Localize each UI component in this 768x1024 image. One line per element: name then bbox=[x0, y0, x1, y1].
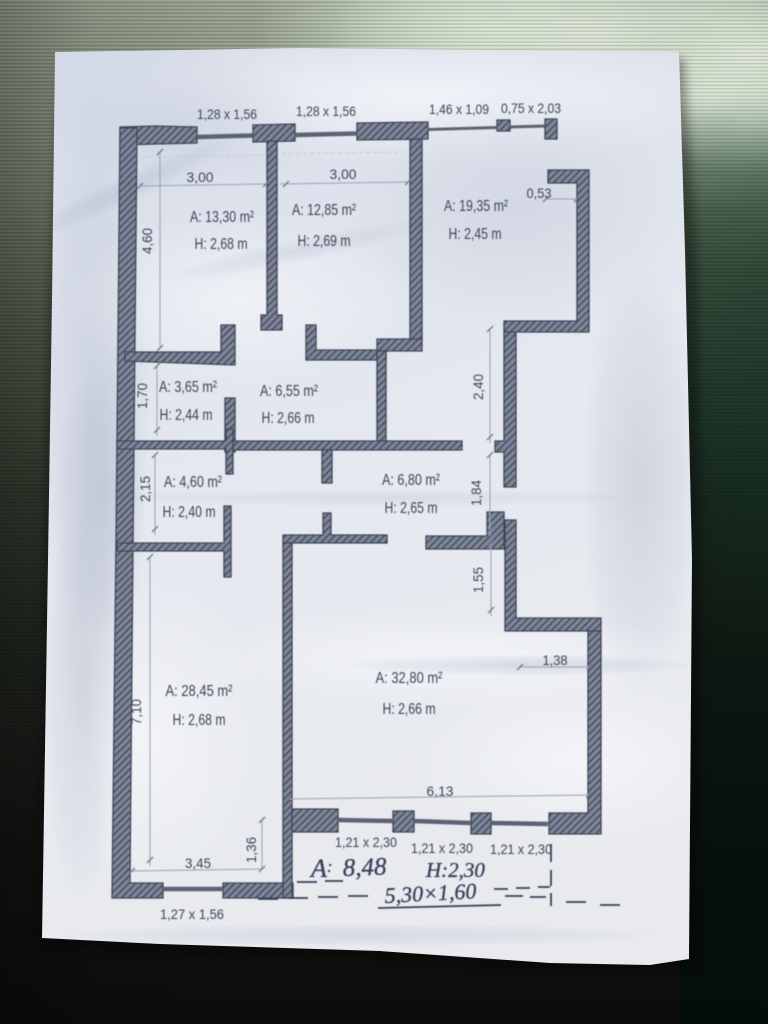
svg-text:H: 2,69 m: H: 2,69 m bbox=[298, 233, 351, 250]
svg-text:6,13: 6,13 bbox=[427, 784, 454, 799]
svg-text:1,28 x 1,56: 1,28 x 1,56 bbox=[197, 107, 257, 122]
svg-text:2,15: 2,15 bbox=[138, 476, 153, 502]
svg-text:A: 32,80 m²: A: 32,80 m² bbox=[376, 670, 444, 687]
svg-text:0,53: 0,53 bbox=[527, 186, 552, 201]
svg-text:4,60: 4,60 bbox=[140, 228, 155, 254]
svg-text:H: 2,66 m: H: 2,66 m bbox=[262, 410, 315, 427]
svg-text:2,40: 2,40 bbox=[471, 374, 486, 400]
svg-text:0,75 x 2,03: 0,75 x 2,03 bbox=[501, 101, 561, 116]
svg-text:1,21 x 2,30: 1,21 x 2,30 bbox=[335, 835, 397, 850]
svg-text:3,00: 3,00 bbox=[187, 170, 214, 185]
svg-text:A: 6,55 m²: A: 6,55 m² bbox=[260, 383, 319, 400]
svg-text:1,38: 1,38 bbox=[543, 653, 568, 668]
svg-text:A: 19,35 m²: A: 19,35 m² bbox=[444, 198, 509, 215]
svg-text:1,21 x 2,30: 1,21 x 2,30 bbox=[411, 841, 473, 856]
svg-text:A: 13,30 m²: A: 13,30 m² bbox=[190, 209, 255, 226]
svg-text:1,27 x 1,56: 1,27 x 1,56 bbox=[160, 907, 224, 922]
svg-text:5,30×1,60: 5,30×1,60 bbox=[384, 878, 477, 908]
svg-text:1,28 x 1,56: 1,28 x 1,56 bbox=[296, 104, 356, 119]
svg-text:A: 4,60 m²: A: 4,60 m² bbox=[164, 474, 223, 491]
svg-text:1,46 x 1,09: 1,46 x 1,09 bbox=[429, 102, 489, 117]
svg-text:1,70: 1,70 bbox=[135, 383, 150, 409]
svg-text:H: 2,68 m: H: 2,68 m bbox=[195, 236, 248, 253]
svg-text:1,55: 1,55 bbox=[471, 567, 486, 593]
svg-text:H: 2,45 m: H: 2,45 m bbox=[449, 226, 502, 243]
svg-text:A: 28,45 m²: A: 28,45 m² bbox=[166, 683, 234, 700]
svg-text:7,10: 7,10 bbox=[129, 699, 144, 725]
svg-text:H: 2,66 m: H: 2,66 m bbox=[383, 701, 436, 718]
svg-text:1,36: 1,36 bbox=[244, 837, 259, 863]
svg-text:A: 12,85 m²: A: 12,85 m² bbox=[292, 202, 357, 219]
svg-text:1,21 x 2,30: 1,21 x 2,30 bbox=[490, 842, 552, 857]
svg-text:3,45: 3,45 bbox=[185, 856, 211, 871]
svg-text:H: 2,65 m: H: 2,65 m bbox=[385, 500, 438, 517]
svg-text:A: 3,65 m²: A: 3,65 m² bbox=[159, 379, 218, 396]
svg-text:3,00: 3,00 bbox=[330, 167, 357, 182]
svg-text:H: 2,44 m: H: 2,44 m bbox=[160, 407, 213, 424]
svg-text:H: 2,40 m: H: 2,40 m bbox=[163, 504, 216, 521]
svg-text:8,48: 8,48 bbox=[342, 853, 387, 882]
svg-text:1,84: 1,84 bbox=[469, 480, 484, 506]
svg-text:H: 2,68 m: H: 2,68 m bbox=[173, 712, 226, 729]
svg-text:A: 6,80 m²: A: 6,80 m² bbox=[382, 472, 441, 489]
